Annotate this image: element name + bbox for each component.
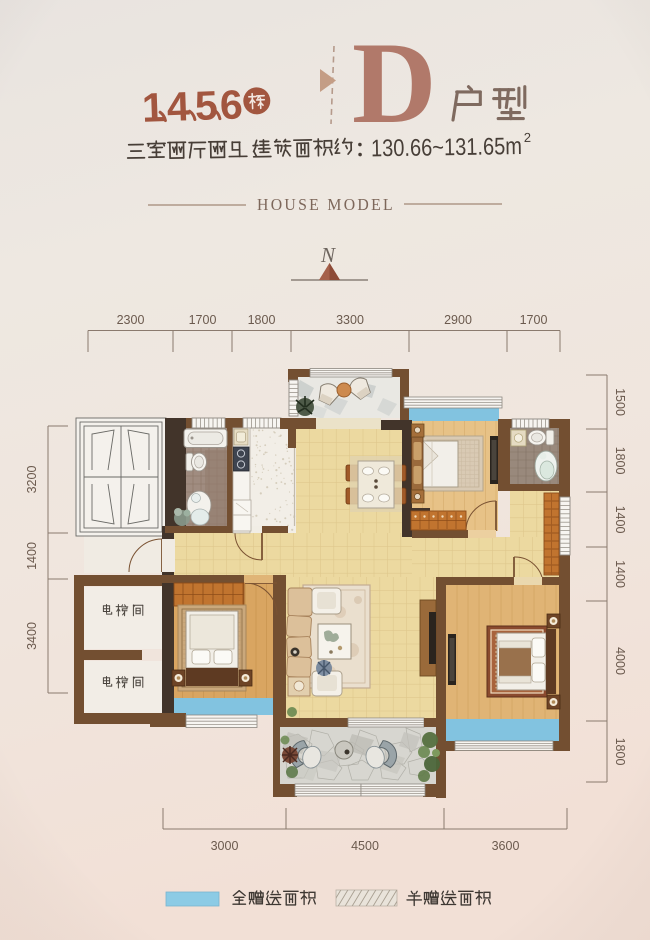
svg-text:130.66~131.65m: 130.66~131.65m: [371, 133, 522, 162]
svg-text:4000: 4000: [613, 647, 627, 675]
svg-text:2300: 2300: [117, 313, 145, 327]
svg-text:HOUSE MODEL: HOUSE MODEL: [257, 195, 395, 214]
svg-text:4500: 4500: [351, 839, 379, 853]
svg-text:3000: 3000: [211, 839, 239, 853]
svg-text:D: D: [352, 19, 437, 148]
svg-text:2: 2: [524, 130, 531, 145]
svg-text:1800: 1800: [613, 738, 627, 766]
svg-text:1800: 1800: [248, 313, 276, 327]
svg-text:6: 6: [219, 81, 243, 128]
svg-text:1500: 1500: [613, 388, 627, 416]
svg-text:1400: 1400: [613, 506, 627, 534]
svg-text:2900: 2900: [444, 313, 472, 327]
svg-text:3400: 3400: [25, 622, 39, 650]
svg-text:1400: 1400: [25, 542, 39, 570]
svg-text:4: 4: [166, 83, 191, 130]
svg-text:1: 1: [141, 84, 165, 131]
svg-text:1400: 1400: [613, 560, 627, 588]
svg-text:1700: 1700: [189, 313, 217, 327]
svg-text:N: N: [320, 243, 336, 267]
svg-text:3200: 3200: [25, 466, 39, 494]
svg-text:1800: 1800: [613, 447, 627, 475]
svg-text:3600: 3600: [492, 839, 520, 853]
svg-text:3300: 3300: [336, 313, 364, 327]
svg-text:5: 5: [194, 82, 218, 129]
svg-text:1700: 1700: [520, 313, 548, 327]
